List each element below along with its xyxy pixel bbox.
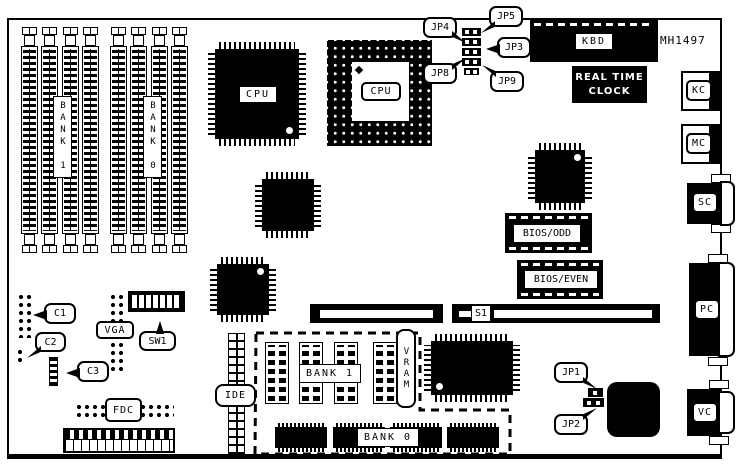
board-part-number: MH1497 [660,34,706,47]
dram-chip [447,423,499,452]
simm-slot [21,27,39,253]
rtc-chip: REAL TIME CLOCK [572,66,647,103]
jp8-label: JP8 [431,68,449,79]
simm-bank1-label: BANK 1 [53,96,72,178]
expansion-slot [310,304,443,323]
jp5-label: JP5 [497,11,515,22]
vc-label: VC [692,402,718,423]
dram-bank1-label: BANK 1 [299,364,361,383]
jumper-jp3 [462,48,481,56]
c2-label: C2 [44,337,56,348]
jumper-jp4 [462,28,481,36]
logic-chip [255,172,321,238]
kbd-label: KBD [575,33,613,50]
bios-odd-chip: BIOS/ODD [505,213,592,253]
dram-chip [275,423,327,452]
motherboard-diagram: BANK 1 BANK 0 CPU CPU KBD MH1497 REAL TI… [0,0,740,465]
jumper-jp8 [462,58,481,66]
bios-even-label: BIOS/EVEN [524,270,598,289]
fdc-label: FDC [105,398,142,422]
jp1-label: JP1 [562,367,580,378]
vc-mount-tab [709,380,729,389]
simm-slot [171,27,189,253]
mc-label: MC [686,133,712,154]
jp2-label: JP2 [562,419,580,430]
vram-label: VRAM [396,329,416,408]
s1-label: S1 [471,305,491,322]
simm-slot [82,27,100,253]
plcc-chip [607,382,660,437]
ide-label: IDE [215,384,256,407]
jp2-callout: JP2 [554,414,588,435]
cpu-pga-socket: CPU [327,40,432,146]
jp4-label: JP4 [431,22,449,33]
rtc-label-line2: CLOCK [589,85,631,99]
video-controller-chip [424,334,520,402]
cpu-qfp-chip: CPU [208,42,306,146]
c1-callout: C1 [44,303,76,324]
jp3-label: JP3 [505,42,523,53]
c3-header [49,357,58,386]
jumper-jp9 [464,68,479,75]
logic-chip [210,257,276,322]
jp1-callout: JP1 [554,362,588,383]
simm-bank0-label: BANK 0 [143,96,162,178]
c2-header [14,346,23,364]
sc-connector-face [720,181,735,226]
expansion-slot-s1: S1 [452,304,660,323]
vga-label: VGA [96,321,134,339]
c3-callout: C3 [77,361,109,382]
jumper-jp2 [583,398,604,407]
jp4-callout: JP4 [423,17,457,38]
vc-connector-face [718,391,735,434]
cpu-pga-core: CPU [352,62,409,121]
kbd-chip: KBD [530,20,658,62]
jp8-callout: JP8 [423,63,457,84]
rtc-label-line1: REAL TIME [575,71,643,85]
jp9-label: JP9 [498,76,516,87]
jp3-callout: JP3 [497,37,531,58]
c3-label: C3 [87,366,99,377]
sw1-callout: SW1 [139,331,176,351]
sw1-label: SW1 [148,336,166,347]
pc-connector-face [718,262,735,357]
power-connector [63,428,175,453]
sw1-dip-switch [128,291,185,312]
sc-label: SC [692,192,718,213]
jp9-callout: JP9 [490,71,524,92]
vc-mount-tab [709,436,729,445]
simm-slot [110,27,128,253]
dram-socket [373,342,397,404]
bios-odd-label: BIOS/ODD [513,224,581,243]
dram-socket [265,342,289,404]
pin1-marker [355,66,363,74]
jumper-jp1 [588,388,603,397]
kc-label: KC [686,80,712,101]
logic-chip [528,143,592,210]
pc-mount-tab [708,357,728,366]
c2-callout: C2 [35,332,66,352]
dram-bank0-label: BANK 0 [357,428,419,447]
jp5-callout: JP5 [489,6,523,27]
cpu-pga-label: CPU [361,82,401,101]
pc-label: PC [694,299,720,320]
bios-even-chip: BIOS/EVEN [517,260,603,299]
jumper-jp5 [462,38,481,46]
c1-header [15,291,31,338]
c1-label: C1 [54,308,66,319]
cpu-qfp-label: CPU [239,86,277,103]
